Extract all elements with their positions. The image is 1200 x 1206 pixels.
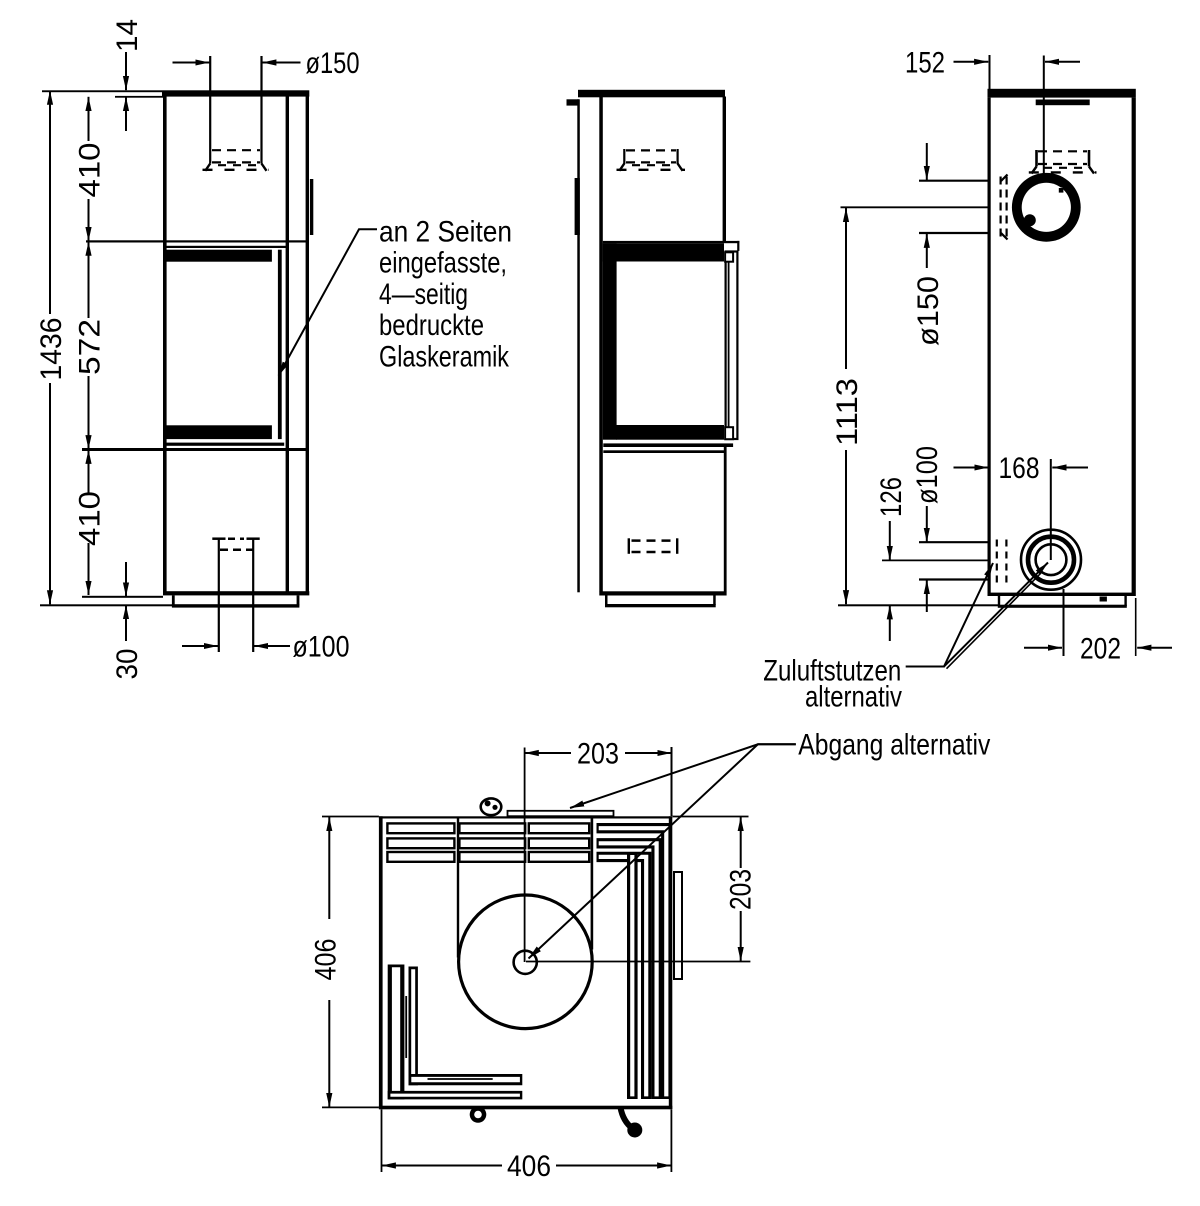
- svg-text:406: 406: [507, 1150, 551, 1183]
- svg-text:an 2 Seiten: an 2 Seiten: [379, 216, 512, 249]
- svg-text:ø100: ø100: [911, 446, 944, 504]
- svg-text:410: 410: [74, 143, 107, 198]
- svg-text:1113: 1113: [831, 378, 864, 446]
- svg-text:ø150: ø150: [306, 47, 360, 80]
- svg-text:ø100: ø100: [293, 631, 350, 664]
- svg-text:30: 30: [111, 649, 144, 680]
- svg-text:203: 203: [724, 869, 757, 910]
- svg-text:4—seitig: 4—seitig: [379, 278, 468, 311]
- svg-text:eingefasste,: eingefasste,: [379, 247, 507, 280]
- svg-text:202: 202: [1080, 632, 1121, 665]
- svg-text:Glaskeramik: Glaskeramik: [379, 340, 510, 373]
- svg-text:572: 572: [74, 319, 107, 375]
- svg-text:Abgang alternativ: Abgang alternativ: [798, 729, 990, 762]
- svg-text:ø150: ø150: [912, 276, 945, 346]
- svg-text:1436: 1436: [35, 318, 68, 381]
- svg-text:126: 126: [875, 477, 908, 517]
- svg-text:203: 203: [577, 738, 619, 771]
- svg-text:168: 168: [999, 452, 1040, 485]
- svg-text:bedruckte: bedruckte: [379, 309, 484, 342]
- svg-text:14: 14: [111, 19, 144, 52]
- svg-text:alternativ: alternativ: [805, 680, 902, 713]
- svg-text:152: 152: [905, 46, 945, 79]
- svg-text:406: 406: [310, 939, 343, 981]
- svg-text:410: 410: [74, 491, 107, 546]
